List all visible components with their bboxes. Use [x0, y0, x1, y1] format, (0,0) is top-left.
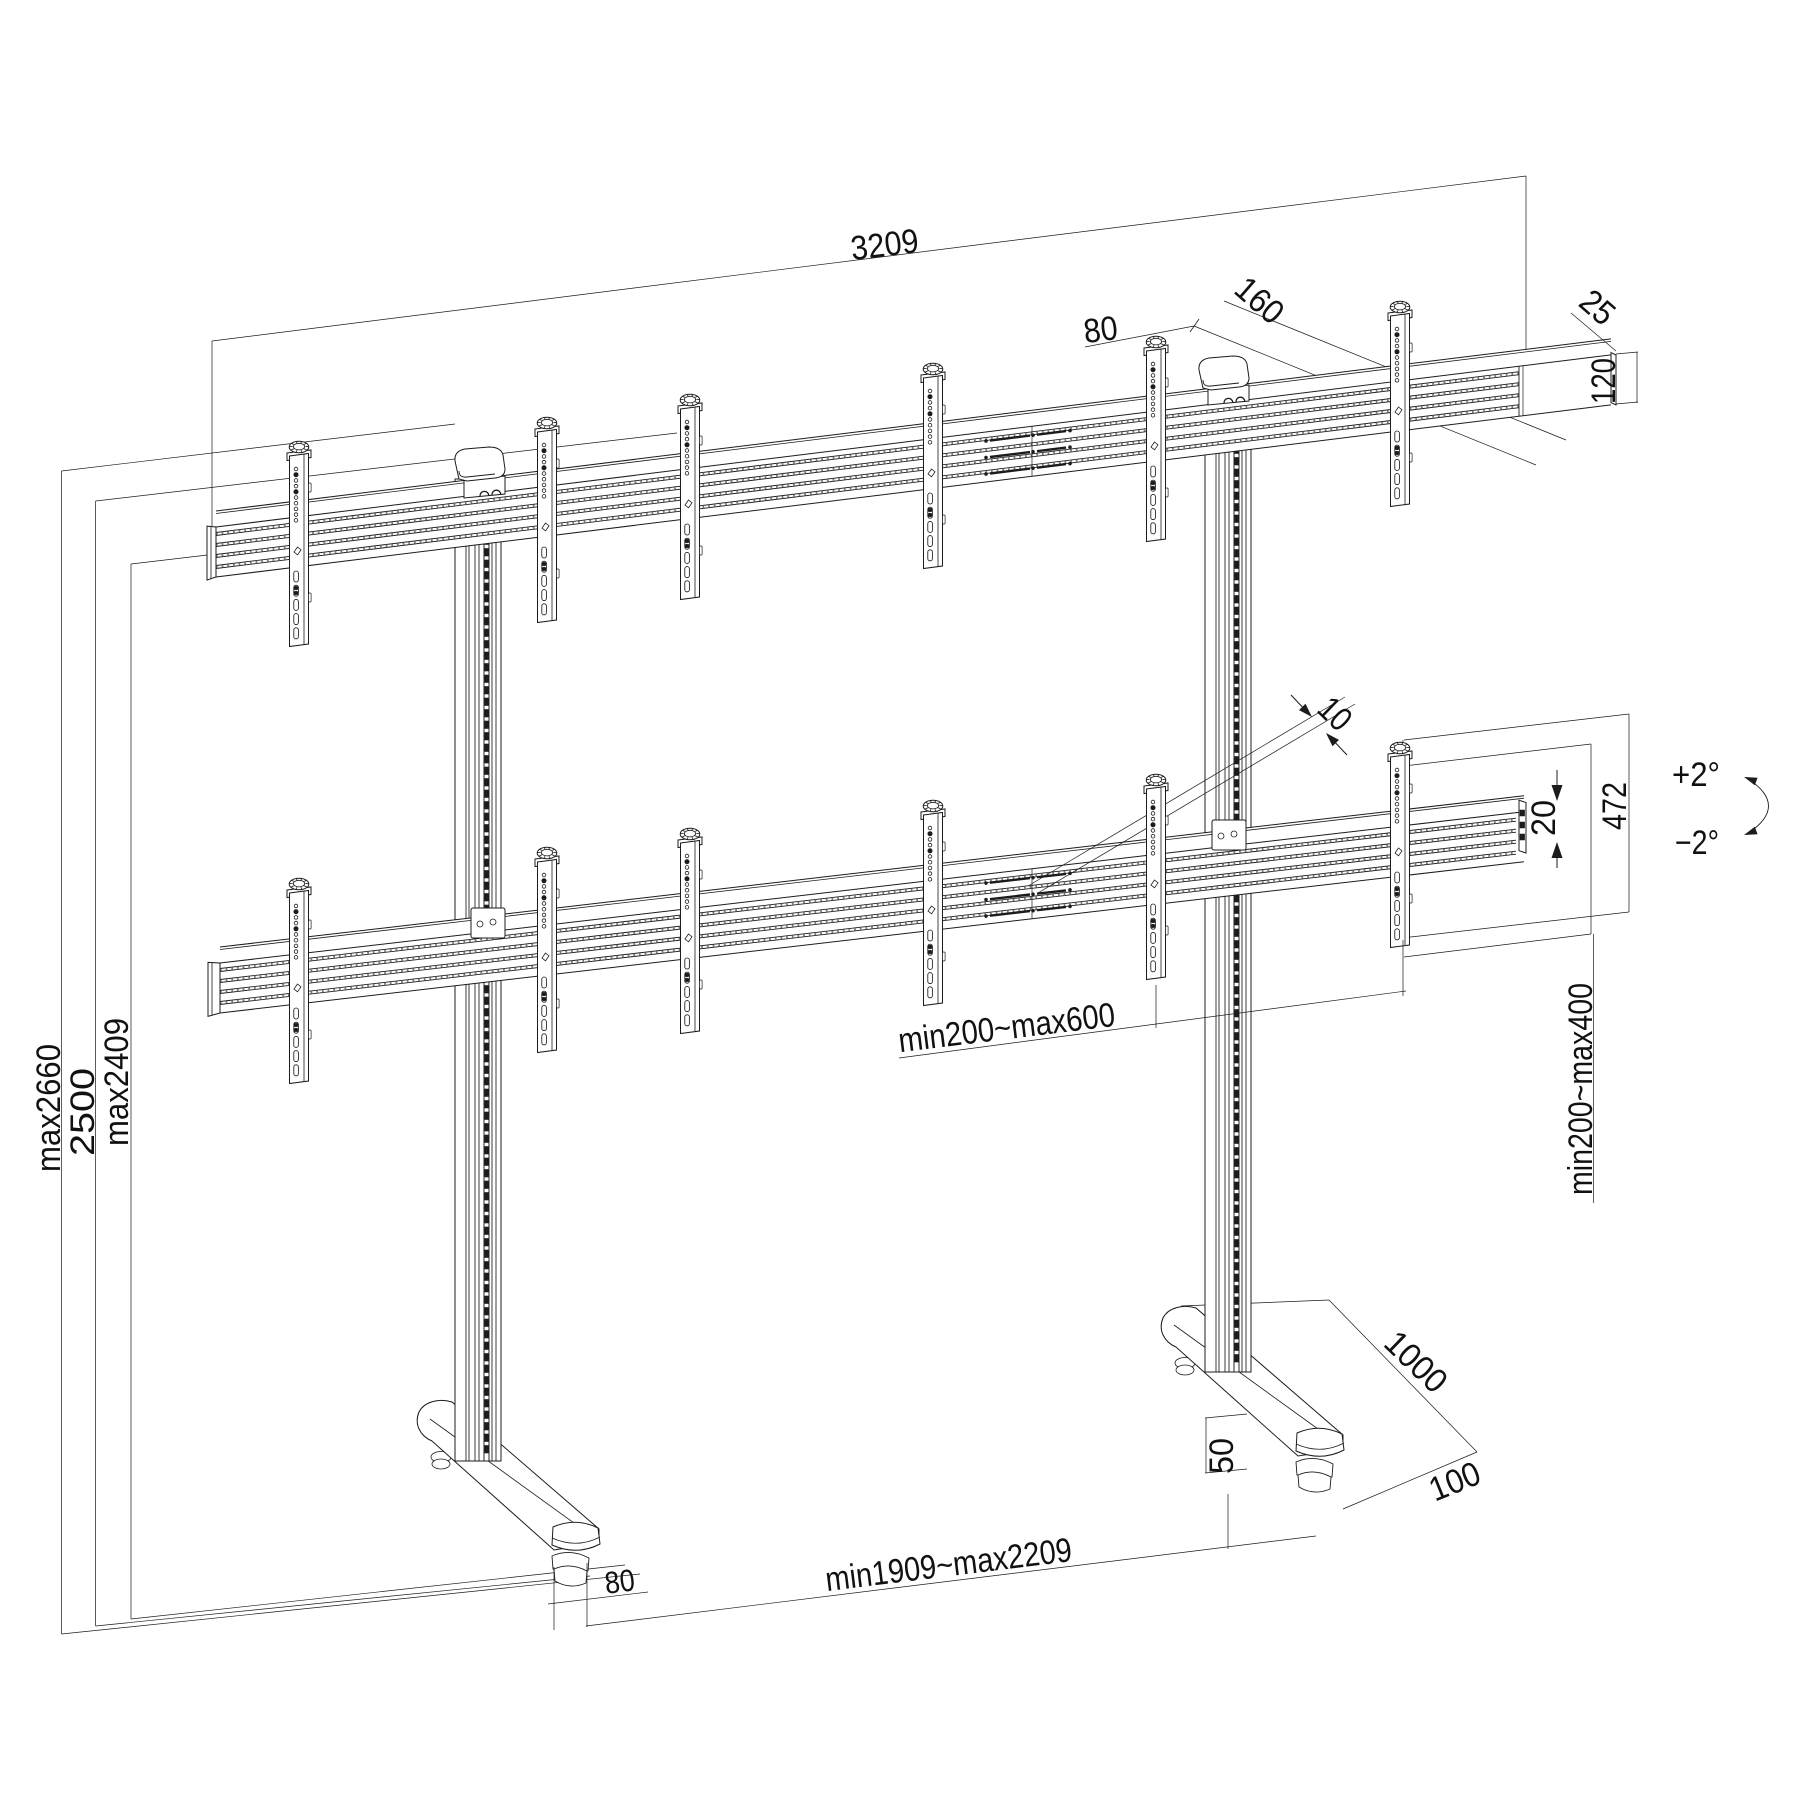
- svg-text:120: 120: [1585, 358, 1623, 404]
- svg-text:50: 50: [1203, 1438, 1241, 1474]
- svg-text:2500: 2500: [64, 1068, 102, 1156]
- svg-text:472: 472: [1596, 782, 1634, 830]
- svg-text:−2°: −2°: [1675, 824, 1719, 862]
- svg-text:20: 20: [1525, 800, 1563, 836]
- svg-text:80: 80: [1081, 309, 1119, 351]
- svg-text:max2409: max2409: [98, 1018, 136, 1146]
- svg-text:+2°: +2°: [1672, 756, 1720, 794]
- svg-text:min200~max400: min200~max400: [1562, 983, 1600, 1195]
- svg-text:max2660: max2660: [30, 1044, 68, 1172]
- svg-text:80: 80: [603, 1562, 637, 1600]
